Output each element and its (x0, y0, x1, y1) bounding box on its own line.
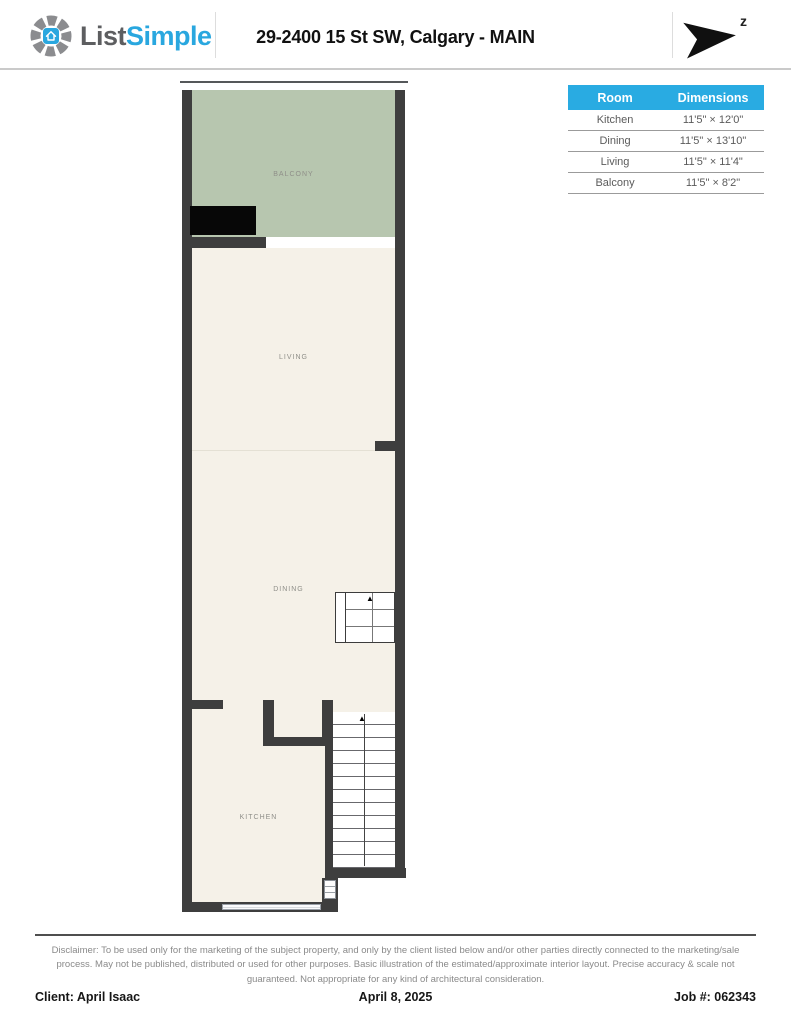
room-name: Living (568, 152, 662, 172)
balcony-label: BALCONY (192, 171, 395, 178)
footer-date: April 8, 2025 (0, 990, 791, 1004)
room-name: Balcony (568, 173, 662, 193)
table-row: Kitchen 11'5" × 12'0" (568, 110, 764, 131)
stair-center-line (364, 714, 365, 866)
north-compass: z (682, 13, 762, 59)
header-divider-right (672, 12, 673, 58)
room-dimensions: 11'5" × 13'10" (662, 131, 764, 151)
stairs-lower-flight: ▲ (333, 712, 395, 868)
table-header-dimensions: Dimensions (662, 85, 764, 110)
table-header-room: Room (568, 85, 662, 110)
balcony-fixture (190, 206, 256, 235)
footer-job-number: Job #: 062343 (674, 990, 756, 1004)
corner-window-fixture (324, 880, 336, 899)
table-row: Balcony 11'5" × 8'2" (568, 173, 764, 194)
room-dimensions: 11'5" × 12'0" (662, 110, 764, 130)
balcony-interior-wall (182, 237, 266, 248)
living-label: LIVING (192, 354, 395, 361)
stair-step-line (346, 626, 394, 627)
plan-outside-area (338, 878, 406, 913)
kitchen-window (222, 904, 321, 910)
table-row: Living 11'5" × 11'4" (568, 152, 764, 173)
stair-up-arrow: ▲ (366, 595, 374, 603)
stair-up-arrow: ▲ (358, 715, 366, 723)
niche-wall-bottom (263, 737, 333, 746)
living-dining-wall-stub (375, 441, 405, 451)
compass-direction-label: z (740, 13, 747, 29)
room-dimensions-table: Room Dimensions Kitchen 11'5" × 12'0" Di… (568, 85, 764, 194)
stair-newel (336, 593, 346, 642)
dining-kitchen-wall (182, 700, 223, 709)
kitchen-stair-divider-wall (325, 706, 333, 878)
stairs-bottom-wall (326, 868, 406, 878)
footer-rule (35, 934, 756, 936)
living-dining-divider (192, 450, 395, 451)
stairs-upper-flight: ▲ (335, 592, 395, 643)
kitchen-label: KITCHEN (192, 814, 325, 821)
table-header-row: Room Dimensions (568, 85, 764, 110)
room-name: Dining (568, 131, 662, 151)
wall-right (395, 90, 405, 878)
north-arrow-icon (682, 15, 740, 59)
floor-plan-page: ListSimple 29-2400 15 St SW, Calgary - M… (0, 0, 791, 1024)
table-row: Dining 11'5" × 13'10" (568, 131, 764, 152)
room-dimensions: 11'5" × 8'2" (662, 173, 764, 193)
room-name: Kitchen (568, 110, 662, 130)
balcony-door-opening (266, 237, 395, 248)
floor-plan-drawing: BALCONY LIVING DINING KITCHEN ▲ ▲ (182, 80, 406, 913)
balcony-railing (180, 81, 408, 83)
room-dimensions: 11'5" × 11'4" (662, 152, 764, 172)
disclaimer-text: Disclaimer: To be used only for the mark… (35, 944, 756, 987)
header-divider-left (215, 12, 216, 58)
header-rule (0, 68, 791, 70)
stair-step-line (346, 609, 394, 610)
